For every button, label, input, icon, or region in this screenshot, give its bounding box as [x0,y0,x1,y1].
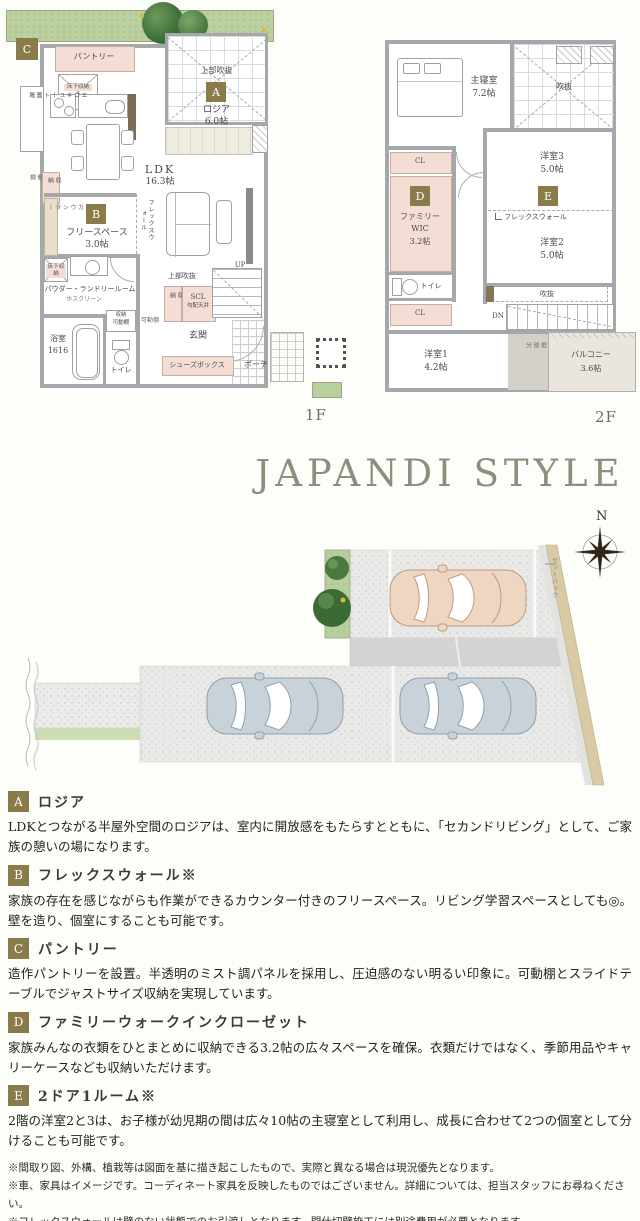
feature-badge-b: B [8,865,29,886]
coffee-table [216,200,232,244]
toilet-label: トイレ [416,282,446,291]
toilet-icon [392,278,402,296]
wall [385,298,455,301]
wall [483,128,616,132]
room3-label: 洋室3 [524,152,580,163]
page-title: JAPANDI STYLE [245,452,635,495]
wall [483,128,487,304]
note-line: ※車、家具はイメージです。コーディネート家具を反映したものではございません。詳細… [8,1178,634,1214]
feature-section: D ファミリーウォークインクローゼット 家族みんなの衣類をひとまとめに収納できる… [8,1012,632,1079]
balcony-hatch [548,332,634,338]
storage-label: 収納 [46,177,61,184]
badge-e: E [538,186,558,206]
freespace-size: 3.0帖 [58,240,136,251]
ldk-label: LDK [130,163,190,177]
upper-void-label: 上部吹抜 [165,66,268,76]
chair [71,156,84,171]
entrance-mat [316,338,346,368]
movable-shelf-label: 可動棚 [107,320,135,327]
badge-d: D [410,186,430,206]
note-line: ※間取り図、外構、植栽等は図面を基に描き起こしたもので、実際と異なる場合は現況優… [8,1160,634,1178]
hatch-box [556,46,582,64]
badge-c: C [16,38,38,60]
chair [71,130,84,145]
chair [121,130,134,145]
feature-badge-e: E [8,1085,29,1106]
entrance-label: 玄関 [178,331,218,342]
compass-n-label: N [596,509,607,524]
feature-body: 2階の洋室2と3は、お子様が幼児期の間は広々10帖の主寝室として利用し、成長に合… [8,1111,632,1152]
sofa [166,192,210,256]
feature-title: ロジア [38,792,86,812]
feature-section: E 2ドア1ルーム※ 2階の洋室2と3は、お子様が幼児期の間は広々10帖の主寝室… [8,1085,632,1152]
tv-board [246,188,253,264]
void-label: 吹抜 [514,82,614,92]
feature-list: A ロジア LDKとつながる半屋外空間のロジアは、室内に開放感をもたらすとともに… [8,791,632,1159]
fwic-label-1: ファミリー [390,212,450,222]
upper-void-label: 上部吹抜 [158,272,206,281]
feature-title: 2ドア1ルーム※ [38,1086,157,1106]
hatch-box [252,125,268,153]
master-size: 7.2帖 [462,89,506,100]
cl-label: CL [390,309,450,318]
setback-label: セットバック [550,557,558,599]
lawn-dot [262,28,266,32]
wall [44,193,136,197]
site-plan [0,540,640,790]
toilet-icon [112,340,130,350]
porch-tile [270,332,304,382]
room1-size: 4.2帖 [408,363,464,374]
toilet-icon [114,350,129,365]
master-label: 主寝室 [462,76,506,87]
flexwall-label: フレックスウォール [139,198,154,242]
feature-badge-c: C [8,938,29,959]
ecocute-label: エコキュート置場 [27,92,87,99]
feature-title: パントリー [38,939,119,959]
wall [385,146,455,150]
counter-label: カウンター [46,204,84,211]
hosclean-label: ホスクリーン [48,296,120,304]
bathtub [72,324,100,380]
shoes-box-label: シューズボックス [162,361,232,370]
movable-shelf-label: 可動棚 [138,317,162,325]
feature-title: フレックスウォール※ [38,865,198,885]
scl-note: 勾配天井 [182,303,214,310]
hatch-box [590,46,614,64]
porch-label: ポーチ [238,360,274,370]
storage-label: 収納 [107,312,135,319]
bed [397,58,463,117]
pantry-label: パントリー [55,52,133,62]
bath-size: 1616 [44,346,72,356]
flexwall-label: フレックスウォール [504,213,574,222]
dn-label: DN [488,312,508,321]
void-label: 吹抜 [486,290,608,299]
feature-body: 造作パントリーを設置。半透明のミスト調パネルを採用し、圧迫感のない明るい印象に。… [8,964,632,1005]
feature-badge-a: A [8,791,29,812]
feature-badge-d: D [8,1012,29,1033]
feature-section: A ロジア LDKとつながる半屋外空間のロジアは、室内に開放感をもたらすとともに… [8,791,632,858]
green-patch [312,382,342,398]
scl-label: SCL [182,293,214,302]
flexwall-line [136,194,137,254]
deck-strip [165,127,253,155]
fwic-size: 3.2帖 [390,237,450,247]
toilet-label: トイレ [106,366,136,375]
room3-size: 5.0帖 [524,165,580,176]
note-line: ※フレックスウォールは壁のない状態でのお引渡しとなります。間仕切壁施工には別途費… [8,1214,634,1221]
flexwall-bracket [495,213,502,220]
room2-size: 5.0帖 [524,251,580,262]
storage-label: 収納 [168,292,183,299]
powder-laundry-label: パウダー・ランドリールーム [40,285,140,294]
balcony-size: 3.6帖 [548,364,634,374]
feature-section: B フレックスウォール※ 家族の存在を感じながらも作業ができるカウンター付きのフ… [8,865,632,932]
badge-a: A [206,82,226,102]
balcony-area [548,332,636,392]
wall [385,272,455,275]
lawn-dot [140,14,144,18]
flyer-page: 上部吹抜 A ロジア 6.0帖 C パントリー 床下収納 エコキュート置場 可動… [0,0,640,1221]
flexwall-line [488,210,614,211]
freespace-label: フリースペース [58,228,136,239]
floor-label-1f: 1F [296,406,336,425]
loggia-label: ロジア [165,105,268,116]
feature-body: 家族の存在を感じながらも作業ができるカウンター付きのフリースペース。リビング学習… [8,891,632,932]
feature-body: 家族みんなの衣類をひとまとめに収納できる3.2帖の広々スペースを確保。衣類だけで… [8,1038,632,1079]
fwic-label-2: WIC [390,224,450,234]
dining-table [86,124,120,180]
washbasin [70,256,108,276]
bath-label: 浴室 [44,334,72,344]
balcony-label: バルコニー [548,350,634,360]
underfloor-label: 床下収納 [46,264,66,278]
disclaimer-notes: ※間取り図、外構、植栽等は図面を基に描き起こしたもので、実際と異なる場合は現況優… [8,1160,634,1221]
feature-title: ファミリーウォークインクローゼット [38,1012,310,1032]
ldk-size: 16.3帖 [130,177,190,188]
feature-section: C パントリー 造作パントリーを設置。半透明のミスト調パネルを採用し、圧迫感のな… [8,938,632,1005]
feature-body: LDKとつながる半屋外空間のロジアは、室内に開放感をもたらすとともに、「セカンド… [8,817,632,858]
badge-b: B [86,204,106,224]
underfloor-label: 床下収納 [64,84,92,91]
cl-label: CL [390,157,450,166]
wall [452,146,456,302]
room1-label: 洋室1 [408,350,464,361]
floor-label-2f: 2F [586,408,626,427]
room2-label: 洋室2 [524,238,580,249]
